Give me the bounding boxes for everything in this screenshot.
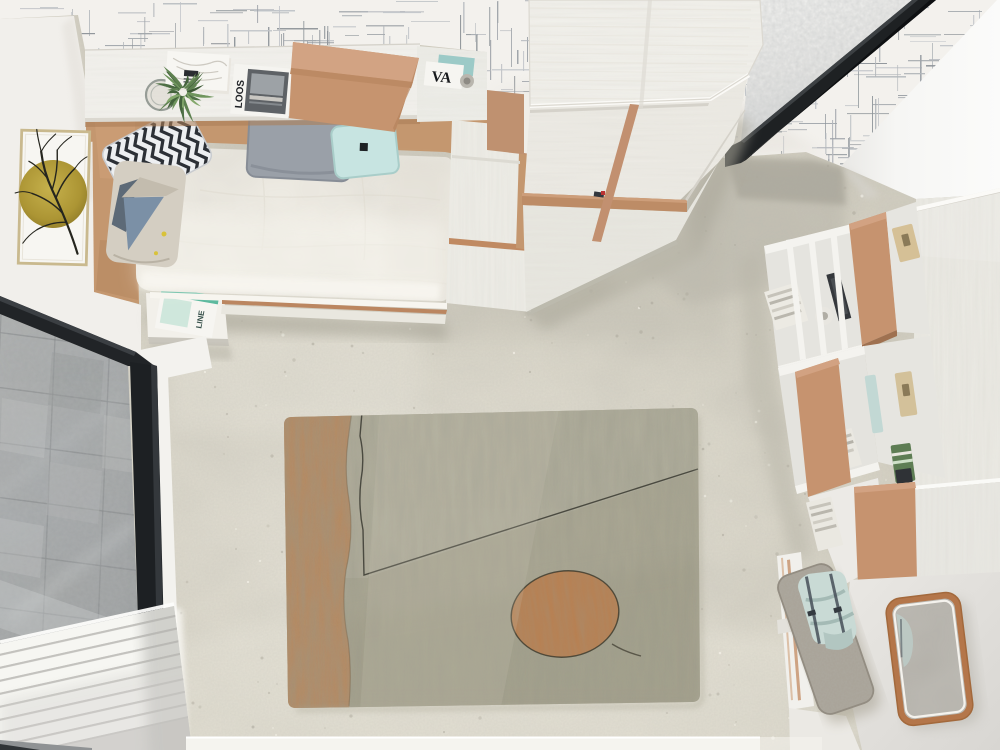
svg-text:VA: VA — [431, 69, 452, 87]
